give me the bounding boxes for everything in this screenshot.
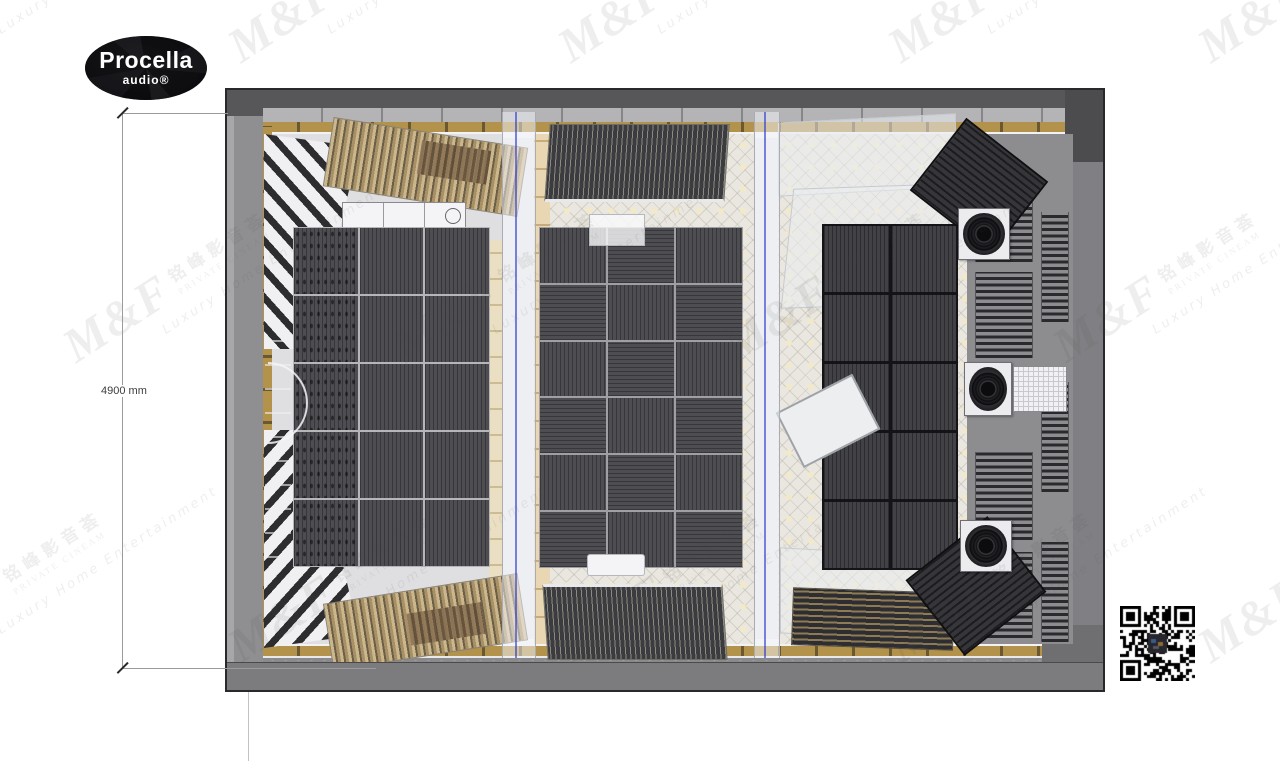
wood-floor-strip-left <box>489 240 503 590</box>
speaker-cone-icon <box>963 213 1005 255</box>
acoustic-tile <box>360 228 424 294</box>
acoustic-tile <box>824 226 889 292</box>
glass-partition-2 <box>754 112 780 658</box>
speaker-top <box>958 208 1010 260</box>
acoustic-tile <box>608 455 674 510</box>
acoustic-tile <box>540 285 606 340</box>
acoustic-tile <box>425 364 489 430</box>
acoustic-tile <box>892 295 957 361</box>
acoustic-tile <box>892 226 957 292</box>
canvas: 4900 mm <box>0 0 1280 761</box>
slat-absorber <box>975 272 1033 358</box>
watermark: M&F铭峰影音荟PRIVATE CINEAMLuxury Home Entert… <box>1190 440 1280 687</box>
dimension-extension-bottom <box>122 668 376 669</box>
bottom-wall-band <box>227 662 1105 692</box>
watermark: M&F铭峰影音荟PRIVATE CINEAMLuxury Home Entert… <box>220 0 551 87</box>
acoustic-tile <box>676 342 742 397</box>
acoustic-tile <box>540 342 606 397</box>
glass-edge-accent <box>764 112 766 658</box>
equipment-module <box>425 203 465 229</box>
acoustic-tile <box>294 432 358 498</box>
diffuser-wood-blocks <box>406 602 485 645</box>
acoustic-tile <box>824 295 889 361</box>
right-wall <box>1073 116 1105 666</box>
watermark: M&F铭峰影音荟PRIVATE CINEAMLuxury Home Entert… <box>550 0 881 87</box>
acoustic-panel-grid-middle <box>539 227 743 568</box>
acoustic-tile <box>676 228 742 283</box>
fan-icon <box>445 208 461 224</box>
acoustic-tile <box>608 342 674 397</box>
acoustic-tile <box>360 500 424 566</box>
speaker-middle <box>964 362 1012 416</box>
logo-brand-text: Procella <box>99 49 193 72</box>
diffuser-wood-blocks <box>417 140 491 185</box>
speaker-cone-icon <box>965 525 1007 567</box>
acoustic-tile <box>425 228 489 294</box>
acoustic-tile <box>608 285 674 340</box>
acoustic-tile <box>294 296 358 362</box>
acoustic-tile <box>294 228 358 294</box>
dimension-extension-top <box>122 113 228 114</box>
acoustic-tile <box>425 432 489 498</box>
equipment-module <box>343 203 384 229</box>
acoustic-tile <box>676 455 742 510</box>
acoustic-tile <box>540 455 606 510</box>
acoustic-tile <box>676 398 742 453</box>
acoustic-tile <box>540 398 606 453</box>
dimension-label: 4900 mm <box>99 385 149 397</box>
acoustic-panel-grid-left <box>293 227 490 567</box>
acoustic-tile <box>360 296 424 362</box>
speaker-cone-icon <box>969 367 1007 411</box>
slat-absorber <box>1041 212 1069 322</box>
qr-code <box>1120 606 1195 681</box>
acoustic-tile <box>676 285 742 340</box>
procella-audio-logo: Procella audio® <box>85 36 207 100</box>
acoustic-tile <box>892 364 957 430</box>
slat-diffuser-bottom-middle <box>542 584 727 660</box>
acoustic-tile <box>824 502 889 568</box>
speaker-bottom <box>960 520 1012 572</box>
acoustic-tile <box>360 432 424 498</box>
speaker-grille <box>1013 366 1067 412</box>
glass-partition-1 <box>502 112 536 658</box>
acoustic-tile <box>892 433 957 499</box>
room-plan <box>225 88 1105 692</box>
floor-fixture <box>587 554 645 576</box>
watermark: M&F铭峰影音荟PRIVATE CINEAMLuxury Home Entert… <box>0 440 221 687</box>
equipment-rack <box>342 202 466 230</box>
left-wall-outer-edge <box>227 116 234 666</box>
watermark: M&F铭峰影音荟PRIVATE CINEAMLuxury Home Entert… <box>880 0 1211 87</box>
glass-edge-accent <box>515 112 517 658</box>
equipment-module <box>384 203 425 229</box>
acoustic-tile <box>676 512 742 567</box>
ceiling-fixture <box>589 214 645 246</box>
acoustic-tile <box>608 398 674 453</box>
acoustic-tile <box>425 296 489 362</box>
slat-diffuser-top-middle <box>544 124 729 202</box>
extension-line-below-room <box>248 690 249 761</box>
acoustic-tile <box>360 364 424 430</box>
acoustic-tile <box>294 500 358 566</box>
acoustic-tile <box>425 500 489 566</box>
logo-sub-text: audio® <box>123 73 170 87</box>
watermark: M&F铭峰影音荟PRIVATE CINEAMLuxury Home Entert… <box>1190 0 1280 87</box>
